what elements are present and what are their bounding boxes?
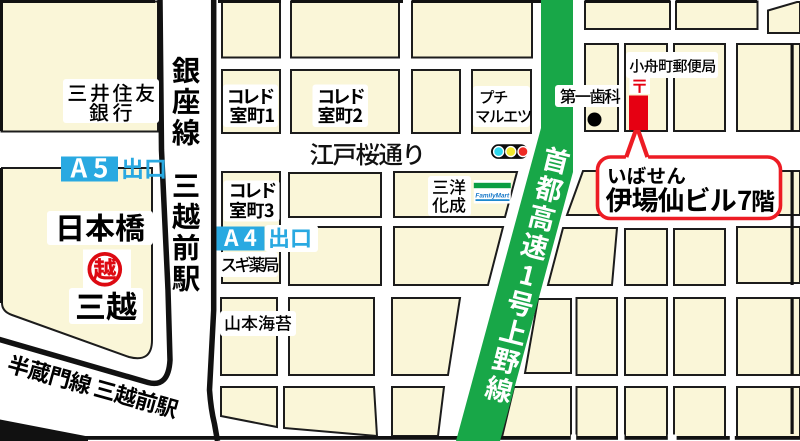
svg-text:FamilyMart: FamilyMart [475,193,510,200]
